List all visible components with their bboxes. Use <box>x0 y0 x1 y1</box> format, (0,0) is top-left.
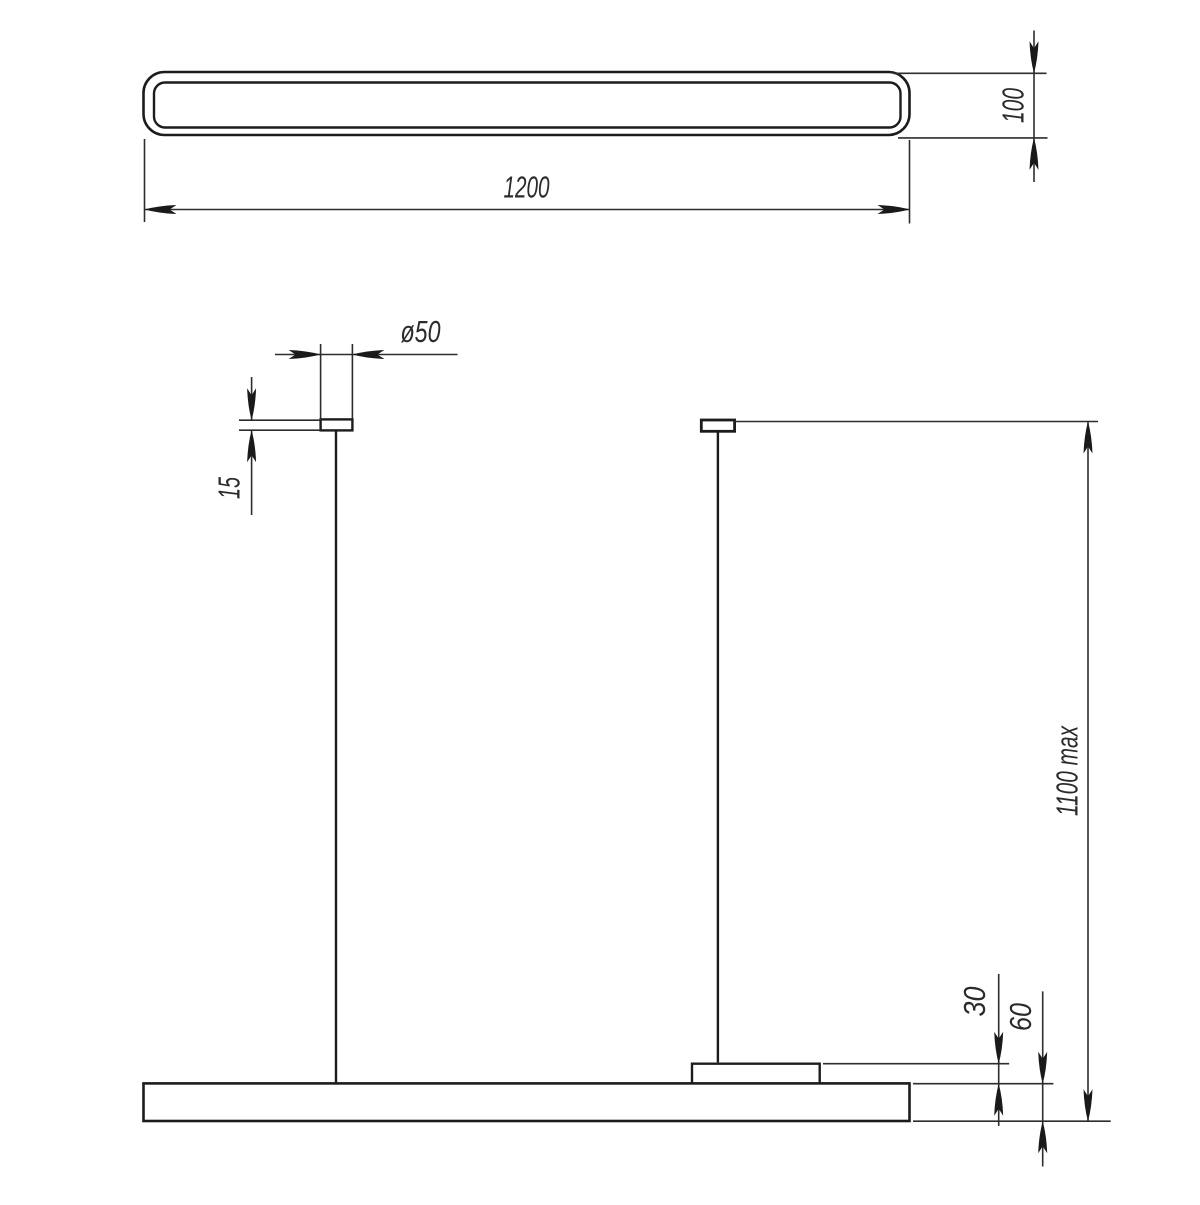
svg-text:ø50: ø50 <box>401 314 441 349</box>
svg-text:1100 max: 1100 max <box>1050 725 1085 816</box>
svg-text:100: 100 <box>996 88 1031 123</box>
svg-text:15: 15 <box>212 477 247 499</box>
svg-text:60: 60 <box>1003 1003 1038 1031</box>
svg-text:30: 30 <box>957 987 992 1017</box>
svg-text:1200: 1200 <box>504 170 550 205</box>
